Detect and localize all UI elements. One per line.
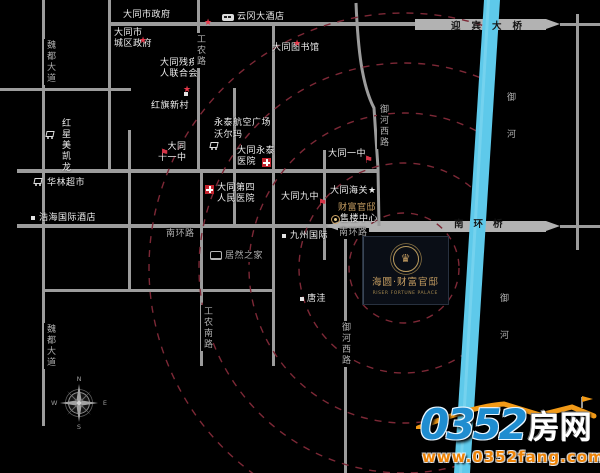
- square-icon: [282, 234, 286, 238]
- watermark-url: www.0352fang.com: [422, 448, 600, 466]
- cross-icon: [262, 158, 271, 167]
- label-weidu-avenue-south: 魏都大道: [44, 323, 55, 369]
- label-nanhuan-road-west: 南环路: [165, 229, 196, 240]
- star-icon: [204, 10, 214, 20]
- label-hongqi-village: 红旗新村: [151, 101, 189, 112]
- label-yungang-hotel: 云冈大酒店: [237, 12, 285, 23]
- star-icon: [139, 28, 149, 38]
- label-jiuzhou-international: 九州国际: [290, 231, 328, 242]
- star-icon: [183, 77, 193, 87]
- site-watermark: 0352 房网 www.0352fang.com: [416, 395, 600, 471]
- map-canvas: 大同市政府云冈大酒店迎宾大桥大同市 城区政府工农路大同残疾 人联合会大同图书馆红…: [0, 0, 600, 473]
- flag-icon: [364, 148, 374, 159]
- label-hospital-4: 大同第四 人民医院: [217, 183, 255, 205]
- project-title: 海圆·财富官邸: [372, 274, 439, 288]
- watermark-number: 0352: [420, 407, 525, 443]
- compass-west-label: W: [51, 399, 57, 407]
- label-gongnong-south-road: 工农南路: [201, 305, 212, 351]
- label-yuhe-west-road-north: 御河西路: [377, 103, 388, 149]
- label-hualin-supermarket: 华林超市: [47, 178, 85, 189]
- sofa-icon: [210, 251, 222, 260]
- compass-south-label: S: [77, 423, 81, 431]
- compass-star-icon: [53, 377, 105, 429]
- square-icon: [184, 92, 188, 96]
- flag-icon: [318, 191, 328, 202]
- label-sales-center: 售楼中心: [340, 214, 378, 225]
- label-haohai-hotel: 浩海国际酒店: [39, 213, 96, 224]
- cart-icon: [208, 141, 219, 151]
- square-icon: [31, 216, 35, 220]
- label-school-1: 大同一中: [328, 149, 366, 160]
- label-yongtai-aviation-plaza: 永泰航空广场: [214, 118, 271, 129]
- project-subtitle: RISER FORTUNE PALACE: [373, 290, 438, 295]
- bus-icon: [222, 14, 234, 21]
- compass-east-label: E: [103, 399, 107, 407]
- label-nanhuan-bridge: 南环桥: [454, 219, 513, 230]
- label-yuhe-west-road-south: 御河西路: [339, 321, 350, 367]
- cross-icon: [205, 185, 214, 194]
- label-school-9: 大同九中: [281, 192, 319, 203]
- square-icon: [300, 297, 304, 301]
- cart-icon: [32, 177, 43, 187]
- compass-north-label: N: [77, 375, 82, 383]
- label-weidu-avenue-north: 魏都大道: [44, 39, 55, 85]
- label-yuhe-river-south: 御河: [497, 292, 508, 368]
- star-icon: [293, 31, 303, 41]
- label-walmart: 沃尔玛: [214, 130, 243, 141]
- label-tangwa: 唐洼: [307, 294, 326, 305]
- label-fortune-palace: 财富官邸: [338, 203, 376, 214]
- label-redstar-macalline: 红星美凯龙: [59, 117, 70, 174]
- cart-icon: [44, 130, 55, 140]
- flag-icon: [160, 141, 170, 152]
- label-datong-city-gov: 大同市政府: [123, 10, 171, 21]
- label-yingbin-bridge: 迎宾大桥: [451, 21, 533, 32]
- project-logo-plate: ♛ 海圆·财富官邸 RISER FORTUNE PALACE: [362, 236, 449, 305]
- label-juran-home: 居然之家: [224, 251, 264, 262]
- label-gongnong-road: 工农路: [194, 33, 205, 68]
- label-yuhe-river-north: 御河: [504, 91, 515, 167]
- watermark-logo: 0352 房网: [420, 407, 592, 443]
- golddot-icon: [331, 215, 340, 224]
- crown-emblem-icon: ♛: [393, 246, 419, 272]
- compass-rose: N E S W: [53, 377, 105, 429]
- label-datong-customs: 大同海关★: [330, 186, 377, 197]
- watermark-cn: 房网: [528, 412, 592, 442]
